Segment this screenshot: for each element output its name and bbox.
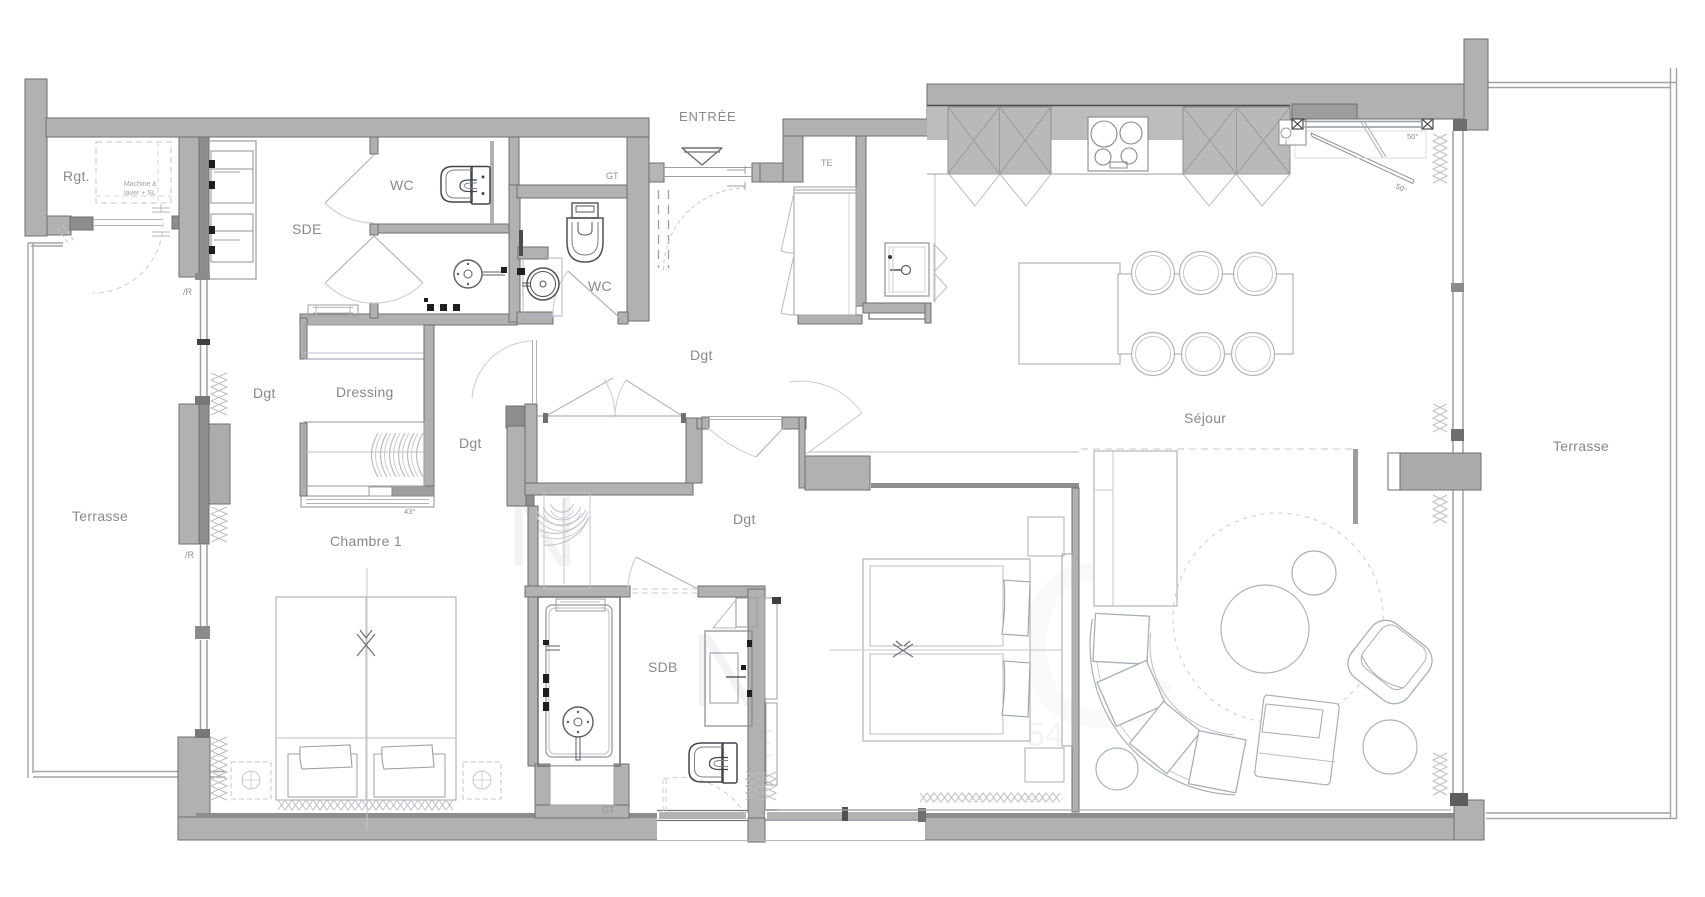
- svg-text:Dgt: Dgt: [733, 511, 756, 527]
- svg-text:ENTRÉE: ENTRÉE: [679, 109, 737, 124]
- svg-text:SDB: SDB: [648, 659, 678, 675]
- svg-text:GT: GT: [606, 171, 619, 181]
- svg-text:Rgt.: Rgt.: [63, 168, 90, 184]
- svg-text:/R: /R: [183, 287, 193, 297]
- svg-text:Dgt: Dgt: [690, 347, 713, 363]
- svg-text:43°: 43°: [404, 507, 415, 516]
- svg-text:Dressing: Dressing: [336, 384, 394, 400]
- svg-text:Machine à: Machine à: [124, 181, 156, 188]
- svg-text:GT: GT: [602, 805, 615, 815]
- svg-text:Chambre 1: Chambre 1: [330, 533, 402, 549]
- svg-text:Dgt: Dgt: [253, 385, 276, 401]
- svg-text:/R: /R: [185, 550, 195, 560]
- svg-text:WC: WC: [588, 278, 612, 294]
- svg-text:Terrasse: Terrasse: [1553, 438, 1609, 454]
- svg-text:50°: 50°: [1407, 132, 1418, 141]
- svg-text:laver + SL: laver + SL: [124, 190, 156, 197]
- svg-text:Séjour: Séjour: [1184, 410, 1226, 426]
- svg-text:Dgt: Dgt: [459, 435, 482, 451]
- svg-text:SDE: SDE: [292, 221, 322, 237]
- svg-text:WC: WC: [390, 177, 414, 193]
- svg-text:Terrasse: Terrasse: [72, 508, 128, 524]
- svg-text:TE: TE: [821, 158, 833, 168]
